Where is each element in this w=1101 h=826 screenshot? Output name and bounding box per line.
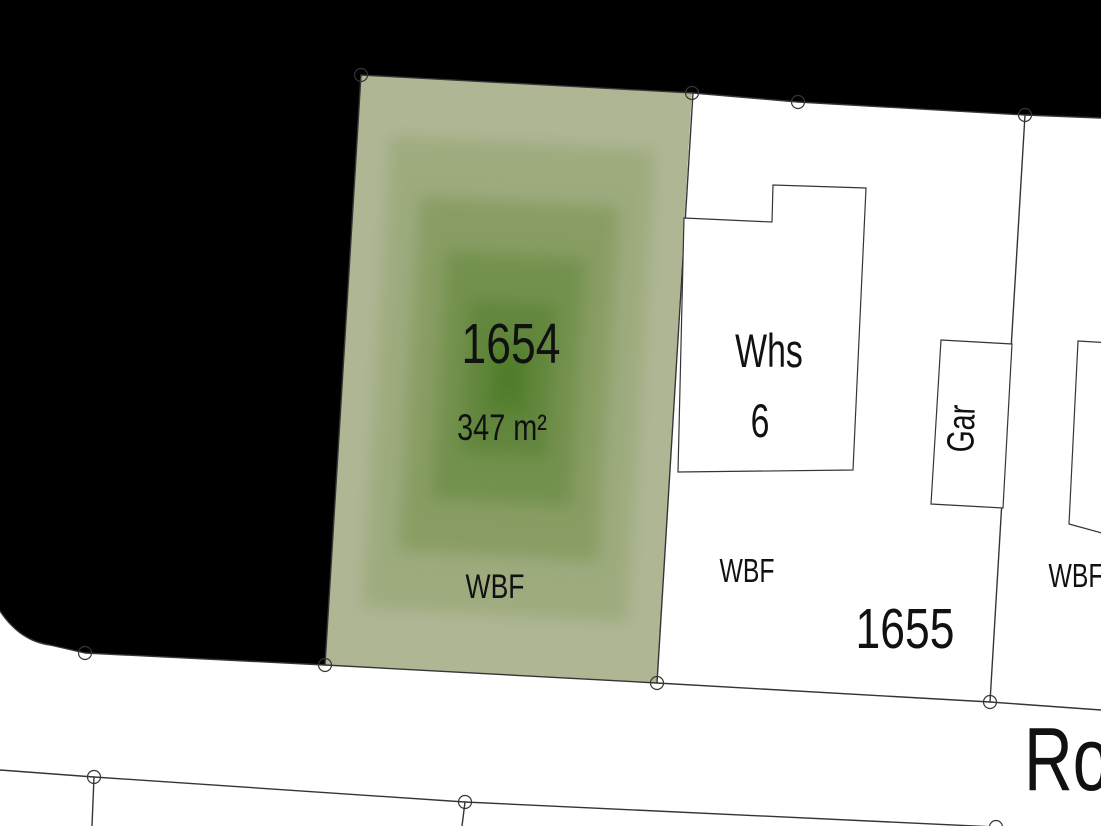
parcel-1654-number-label: 1654 (462, 312, 561, 376)
parcel-1654-usage-label: WBF (466, 568, 525, 606)
parcel-1655-number-label: 1655 (856, 597, 955, 661)
street-name-label: Ro (1024, 709, 1101, 810)
parcel-right-usage-label: WBF (1049, 559, 1101, 595)
building-whs-label: Whs (735, 325, 803, 378)
cadastral-map-view: 1654 347 m² WBF Whs 6 Gar 1655 WBF WBF R… (0, 0, 1101, 826)
building-gar-label: Gar (940, 404, 983, 453)
parcel-1654-area-label: 347 m² (457, 408, 547, 449)
building-house-number-label: 6 (751, 395, 770, 448)
parcel-1655-usage-label: WBF (720, 554, 775, 590)
